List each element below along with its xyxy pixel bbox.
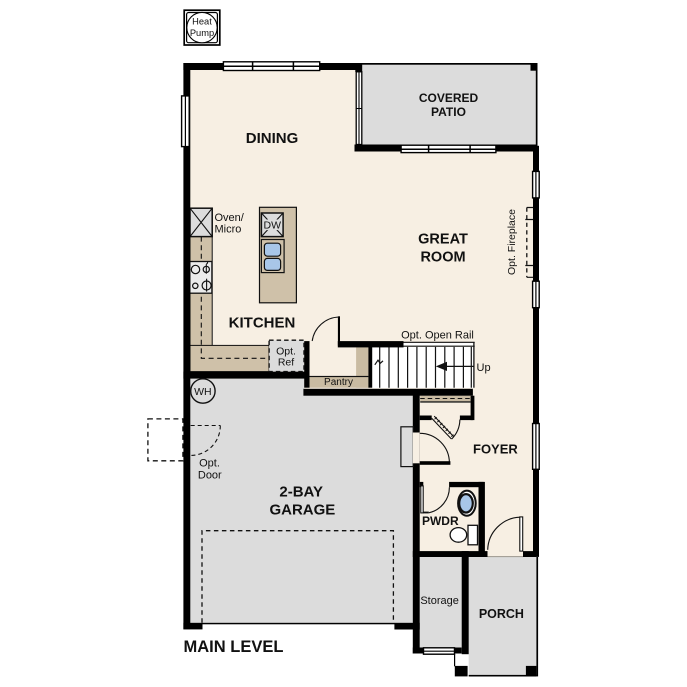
svg-text:COVERED: COVERED: [419, 91, 479, 105]
svg-text:Pantry: Pantry: [324, 377, 353, 388]
svg-text:Up: Up: [477, 362, 491, 374]
svg-text:Storage: Storage: [420, 595, 459, 607]
svg-text:PWDR: PWDR: [422, 514, 459, 528]
svg-text:Oven/: Oven/: [215, 212, 245, 224]
svg-text:PORCH: PORCH: [479, 607, 524, 621]
svg-text:MAIN LEVEL: MAIN LEVEL: [184, 638, 284, 656]
svg-text:DW: DW: [264, 219, 282, 231]
svg-text:Pump: Pump: [190, 28, 214, 38]
svg-text:PATIO: PATIO: [431, 105, 466, 119]
svg-text:Ref: Ref: [278, 356, 294, 368]
svg-text:FOYER: FOYER: [473, 442, 518, 457]
svg-text:Heat: Heat: [192, 17, 212, 27]
svg-text:GARAGE: GARAGE: [269, 501, 335, 518]
svg-text:DINING: DINING: [246, 130, 299, 147]
svg-text:Opt. Open Rail: Opt. Open Rail: [401, 330, 474, 342]
svg-text:ROOM: ROOM: [420, 250, 465, 266]
svg-text:KITCHEN: KITCHEN: [229, 315, 296, 332]
svg-text:Door: Door: [198, 470, 222, 482]
svg-text:WH: WH: [194, 386, 212, 398]
svg-text:Opt. Fireplace: Opt. Fireplace: [506, 209, 518, 275]
svg-text:GREAT: GREAT: [418, 232, 468, 248]
svg-text:Micro: Micro: [215, 223, 242, 235]
svg-text:2-BAY: 2-BAY: [279, 484, 323, 501]
svg-text:Opt.: Opt.: [199, 458, 220, 470]
